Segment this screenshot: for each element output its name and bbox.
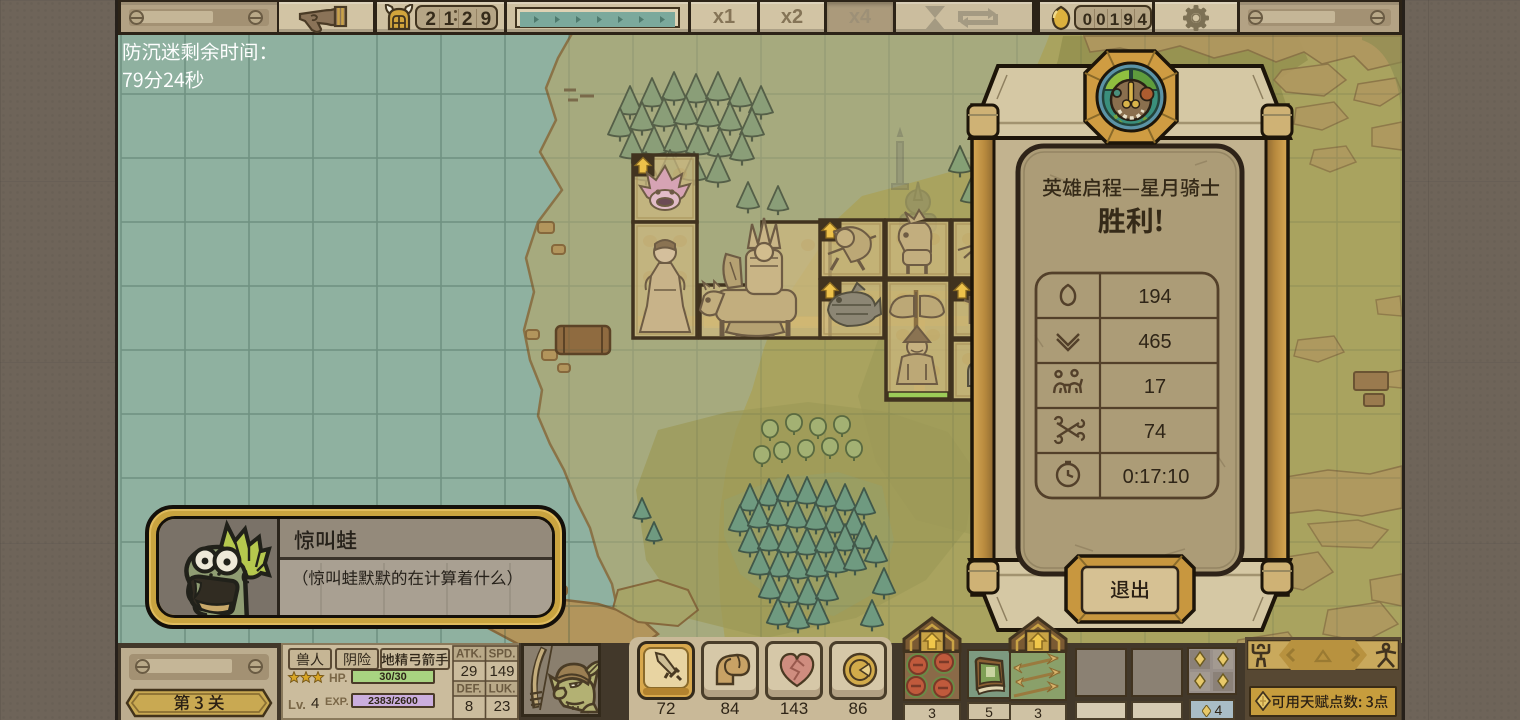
svg-text:194: 194 — [1138, 286, 1171, 308]
svg-text:ATK.: ATK. — [456, 649, 482, 661]
svg-text:74: 74 — [1144, 421, 1166, 443]
svg-text:17: 17 — [1144, 376, 1166, 398]
svg-text:8: 8 — [465, 698, 473, 715]
svg-text:149: 149 — [489, 663, 514, 680]
svg-text:DEF.: DEF. — [457, 684, 482, 696]
svg-text:0:17:10: 0:17:10 — [1123, 466, 1190, 488]
svg-text:SPD.: SPD. — [489, 649, 516, 661]
svg-text:465: 465 — [1138, 331, 1171, 353]
svg-text:29: 29 — [461, 663, 478, 680]
svg-text:23: 23 — [494, 698, 511, 715]
svg-text:LUK.: LUK. — [489, 684, 516, 696]
